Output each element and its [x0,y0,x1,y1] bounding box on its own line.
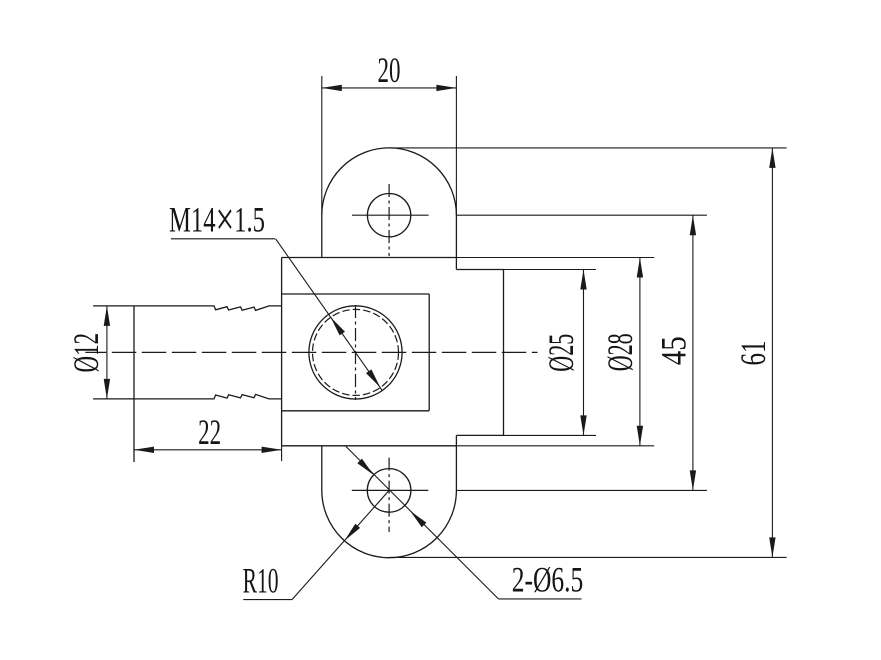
svg-text:Ø28: Ø28 [600,333,640,371]
svg-text:22: 22 [198,412,221,452]
svg-text:20: 20 [378,50,401,90]
svg-text:R10: R10 [243,561,279,601]
svg-text:61: 61 [733,341,773,366]
svg-text:45: 45 [654,336,694,365]
svg-text:Ø25: Ø25 [541,334,581,372]
svg-text:Ø12: Ø12 [66,333,106,373]
svg-text:M14×1.5: M14×1.5 [169,193,265,246]
svg-text:2-Ø6.5: 2-Ø6.5 [512,560,584,600]
